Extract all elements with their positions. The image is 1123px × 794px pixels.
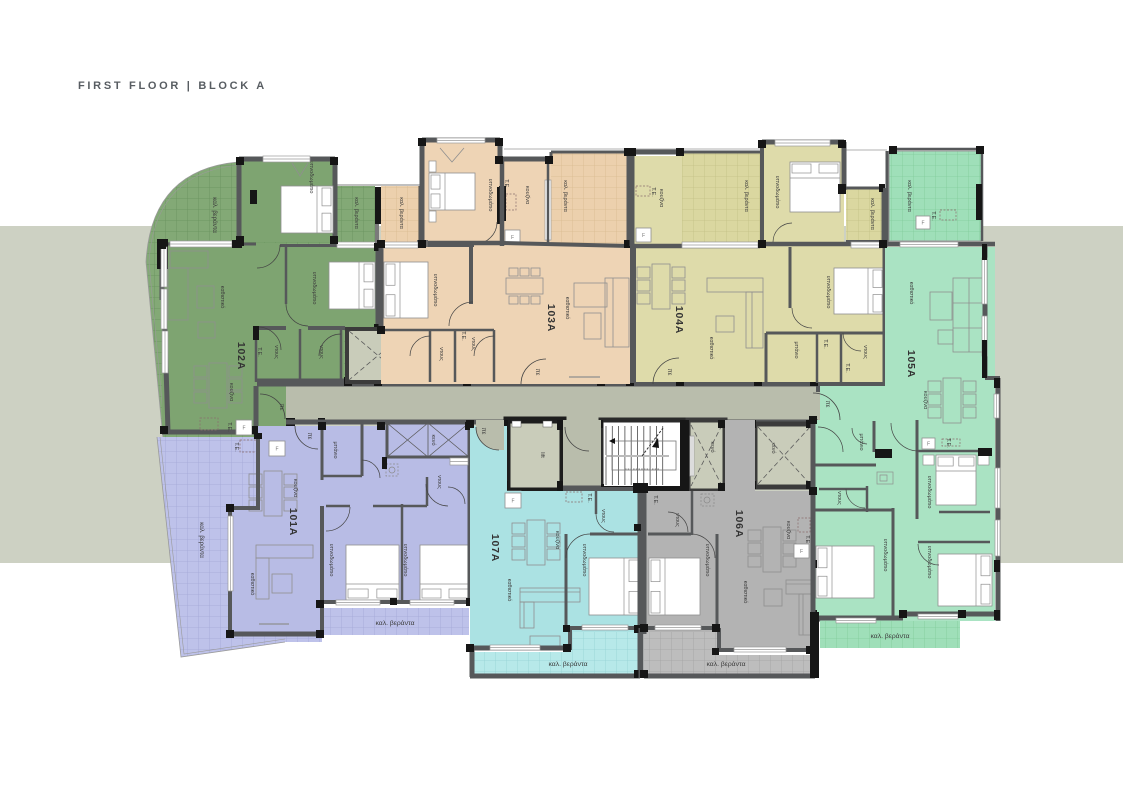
svg-text:υπνοδωμάτιο: υπνοδωμάτιο xyxy=(825,276,832,309)
svg-text:καλ. βεράντα: καλ. βεράντα xyxy=(870,632,909,640)
svg-text:ντους: ντους xyxy=(600,509,606,523)
svg-text:καλ. βεράντα: καλ. βεράντα xyxy=(198,522,205,558)
svg-text:κουζίνα: κουζίνα xyxy=(785,521,791,540)
svg-text:ντους: ντους xyxy=(862,345,868,359)
svg-text:F: F xyxy=(242,426,245,432)
svg-text:103A: 103A xyxy=(545,304,557,332)
svg-text:καλ. βεράντα: καλ. βεράντα xyxy=(398,197,405,229)
svg-text:πε: πε xyxy=(824,401,830,408)
svg-text:καθιστικό: καθιστικό xyxy=(249,573,256,596)
svg-text:102A: 102A xyxy=(235,342,247,370)
svg-text:καθιστικό: καθιστικό xyxy=(506,579,513,602)
svg-text:F: F xyxy=(275,447,278,453)
svg-text:υπνοδωμάτιο: υπνοδωμάτιο xyxy=(882,539,889,572)
svg-text:καλ. βεράντα: καλ. βεράντα xyxy=(562,180,569,212)
svg-text:καθιστικό: καθιστικό xyxy=(742,581,749,604)
svg-text:καλ. βεράντα: καλ. βεράντα xyxy=(869,198,876,230)
svg-text:πε: πε xyxy=(534,369,540,376)
svg-text:υπνοδωμάτιο: υπνοδωμάτιο xyxy=(487,179,494,212)
svg-text:Τ.Ε.: Τ.Ε. xyxy=(930,211,936,221)
svg-text:101A: 101A xyxy=(287,508,299,536)
svg-text:Τ.Ε.: Τ.Ε. xyxy=(226,422,232,432)
svg-text:105A: 105A xyxy=(905,350,917,378)
svg-text:υπνοδωμάτιο: υπνοδωμάτιο xyxy=(311,272,318,305)
svg-text:καθιστικό: καθιστικό xyxy=(908,282,915,305)
svg-text:Τ.Ε.: Τ.Ε. xyxy=(822,339,828,349)
svg-text:Τ.Ε.: Τ.Ε. xyxy=(233,442,239,452)
svg-text:104A: 104A xyxy=(673,306,685,334)
svg-text:υπνοδωμάτιο: υπνοδωμάτιο xyxy=(704,544,711,577)
svg-text:υπνοδωμάτιο: υπνοδωμάτιο xyxy=(308,161,315,194)
svg-text:κουζίνα: κουζίνα xyxy=(292,479,298,498)
svg-text:κουζίνα: κουζίνα xyxy=(554,531,560,550)
svg-text:μπάνιο: μπάνιο xyxy=(332,441,339,458)
svg-text:κουζίνα: κουζίνα xyxy=(658,189,664,208)
svg-text:μπάνιο: μπάνιο xyxy=(858,433,865,450)
svg-text:υπνοδωμάτιο: υπνοδωμάτιο xyxy=(328,544,335,577)
svg-text:υπνοδωμάτιο: υπνοδωμάτιο xyxy=(926,476,933,509)
svg-text:καθιστικό: καθιστικό xyxy=(219,286,226,309)
svg-text:καθιστικό: καθιστικό xyxy=(564,297,571,320)
svg-text:lift: lift xyxy=(539,452,545,458)
svg-text:κουζίνα: κουζίνα xyxy=(922,391,928,410)
svg-text:υπνοδωμάτιο: υπνοδωμάτιο xyxy=(581,544,588,577)
svg-text:κουζίνα: κουζίνα xyxy=(524,186,530,205)
svg-text:υπνοδωμάτιο: υπνοδωμάτιο xyxy=(432,274,439,307)
svg-text:Τ.Ε.: Τ.Ε. xyxy=(945,438,951,448)
svg-text:πε: πε xyxy=(306,433,312,440)
svg-text:καλ. βεράντα: καλ. βεράντα xyxy=(353,197,360,229)
svg-text:κενό: κενό xyxy=(770,442,777,453)
svg-text:κουζίνα: κουζίνα xyxy=(228,383,234,402)
svg-text:καθιστικό: καθιστικό xyxy=(708,337,715,360)
svg-text:Τ.Ε.: Τ.Ε. xyxy=(650,187,656,197)
svg-text:106A: 106A xyxy=(733,510,745,538)
svg-text:καλ. βεράντα: καλ. βεράντα xyxy=(375,619,414,627)
svg-text:F: F xyxy=(511,499,514,505)
svg-text:μπάνιο: μπάνιο xyxy=(793,341,800,358)
svg-text:Τ.Ε.: Τ.Ε. xyxy=(256,347,262,357)
svg-text:καλ. βεράντα: καλ. βεράντα xyxy=(548,660,587,668)
svg-text:F: F xyxy=(921,221,924,227)
svg-text:ντους: ντους xyxy=(836,491,842,505)
svg-text:F: F xyxy=(642,233,645,239)
svg-text:πε: πε xyxy=(666,369,672,376)
svg-text:πε: πε xyxy=(278,404,284,411)
svg-text:107A: 107A xyxy=(489,534,501,562)
svg-text:καλ. βεράντα: καλ. βεράντα xyxy=(706,660,745,668)
svg-text:Τ.Ε.: Τ.Ε. xyxy=(652,495,658,505)
svg-text:F: F xyxy=(800,549,803,555)
svg-text:F: F xyxy=(927,442,930,448)
svg-text:Τ.Ε.: Τ.Ε. xyxy=(844,363,850,373)
svg-text:ντους: ντους xyxy=(438,347,444,361)
svg-text:κενό: κενό xyxy=(709,441,716,452)
svg-text:F: F xyxy=(511,235,514,241)
svg-text:καλ. βεράντα: καλ. βεράντα xyxy=(906,180,913,212)
svg-text:υπνοδωμάτιο: υπνοδωμάτιο xyxy=(926,546,933,579)
svg-text:καλ. βεράντα: καλ. βεράντα xyxy=(743,180,750,212)
svg-text:κενό: κενό xyxy=(430,434,437,445)
svg-text:Τ.Ε.: Τ.Ε. xyxy=(586,493,592,503)
svg-text:ντους: ντους xyxy=(273,345,279,359)
svg-text:καλ. βεράντα: καλ. βεράντα xyxy=(211,197,218,233)
svg-text:ντους: ντους xyxy=(436,475,442,489)
svg-text:υπνοδωμάτιο: υπνοδωμάτιο xyxy=(774,176,781,209)
svg-text:FIRST FLOOR | BLOCK A: FIRST FLOOR | BLOCK A xyxy=(78,80,267,92)
svg-text:Τ.Ε.: Τ.Ε. xyxy=(460,331,466,341)
svg-text:πε: πε xyxy=(480,428,486,435)
